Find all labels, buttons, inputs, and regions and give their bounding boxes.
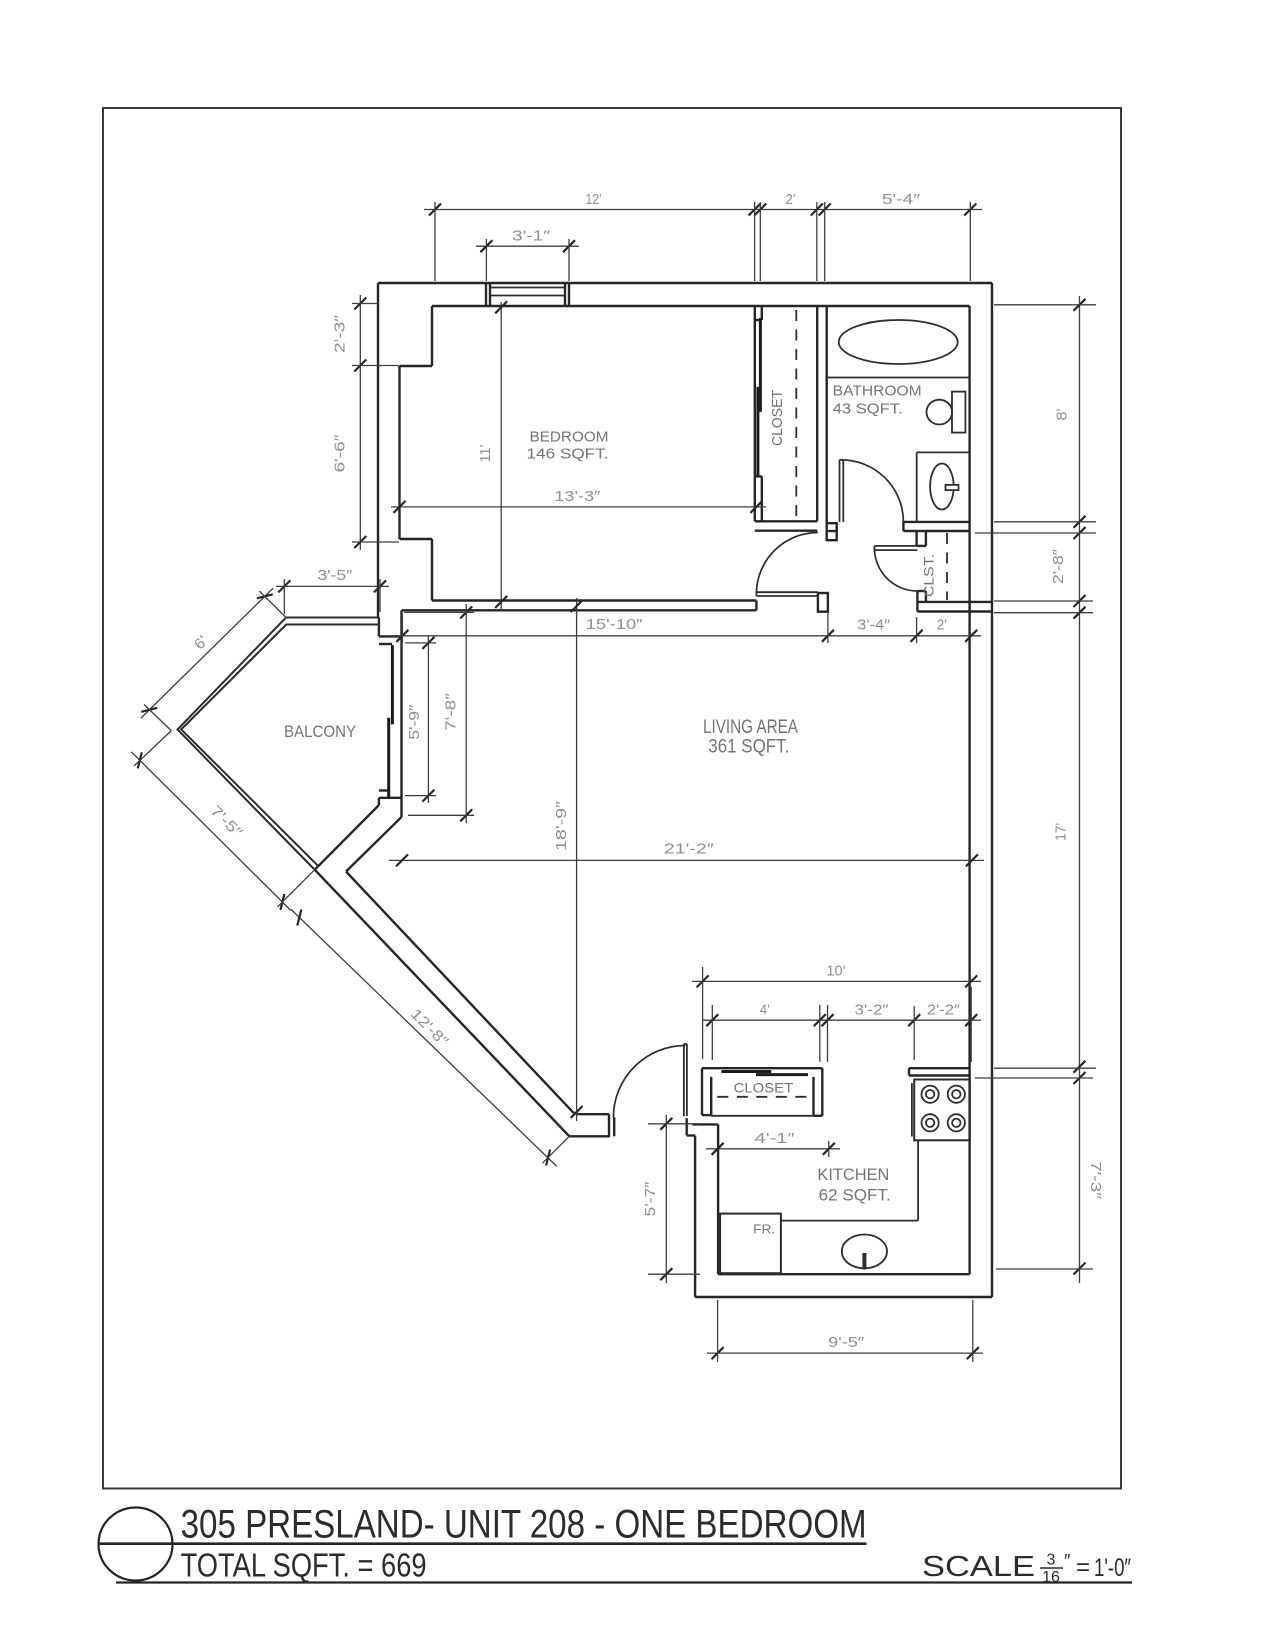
svg-text:6'-6″: 6'-6″ xyxy=(332,434,349,473)
svg-text:4'-1″: 4'-1″ xyxy=(755,1130,796,1147)
svg-text:16: 16 xyxy=(1042,1569,1060,1586)
svg-text:TOTAL SQFT. = 669: TOTAL SQFT. = 669 xyxy=(181,1547,427,1584)
svg-text:=: = xyxy=(1076,1554,1090,1581)
svg-text:7'-3″: 7'-3″ xyxy=(1087,1161,1104,1200)
svg-text:11': 11' xyxy=(477,444,494,462)
svg-text:2'-3″: 2'-3″ xyxy=(332,314,349,353)
svg-text:LIVING AREA: LIVING AREA xyxy=(703,717,798,738)
svg-text:2': 2' xyxy=(937,617,947,634)
svg-text:″: ″ xyxy=(1064,1551,1071,1571)
svg-text:305 PRESLAND- UNIT 208 - ONE B: 305 PRESLAND- UNIT 208 - ONE BEDROOM xyxy=(181,1503,867,1547)
svg-text:43 SQFT.: 43 SQFT. xyxy=(833,401,903,418)
svg-text:CLOSET: CLOSET xyxy=(734,1080,794,1096)
svg-text:FR.: FR. xyxy=(753,1222,775,1237)
svg-text:8': 8' xyxy=(1054,408,1071,420)
svg-text:21'-2″: 21'-2″ xyxy=(664,841,715,858)
svg-text:1'-0″: 1'-0″ xyxy=(1094,1554,1131,1582)
svg-text:4': 4' xyxy=(760,1002,770,1019)
svg-text:3'-4″: 3'-4″ xyxy=(857,617,891,634)
svg-text:9'-5″: 9'-5″ xyxy=(828,1334,865,1351)
svg-text:13'-3″: 13'-3″ xyxy=(554,488,601,505)
svg-text:7'-8″: 7'-8″ xyxy=(443,692,460,731)
svg-text:5'-9″: 5'-9″ xyxy=(406,704,423,740)
svg-text:5'-7″: 5'-7″ xyxy=(642,1181,659,1217)
svg-text:62 SQFT.: 62 SQFT. xyxy=(819,1186,891,1205)
svg-text:10': 10' xyxy=(826,962,845,979)
svg-text:SCALE: SCALE xyxy=(922,1551,1035,1583)
svg-text:BEDROOM: BEDROOM xyxy=(530,429,609,446)
svg-text:BATHROOM: BATHROOM xyxy=(833,383,922,400)
svg-text:KITCHEN: KITCHEN xyxy=(817,1165,889,1184)
svg-text:3'-1″: 3'-1″ xyxy=(512,228,551,245)
svg-text:2'-8″: 2'-8″ xyxy=(1050,548,1067,584)
svg-text:12': 12' xyxy=(586,191,602,208)
svg-text:2'-2″: 2'-2″ xyxy=(927,1002,961,1019)
svg-text:15'-10″: 15'-10″ xyxy=(586,616,644,633)
svg-text:5'-4″: 5'-4″ xyxy=(882,191,921,208)
svg-text:18'-9″: 18'-9″ xyxy=(553,800,570,851)
svg-text:2': 2' xyxy=(786,191,796,208)
svg-text:CLST.: CLST. xyxy=(922,554,937,597)
svg-text:CLOSET: CLOSET xyxy=(769,390,786,446)
svg-text:17': 17' xyxy=(1052,823,1069,841)
svg-text:BALCONY: BALCONY xyxy=(284,722,356,741)
svg-text:3'-2″: 3'-2″ xyxy=(855,1002,890,1019)
svg-text:3'-5″: 3'-5″ xyxy=(317,567,353,584)
svg-text:146 SQFT.: 146 SQFT. xyxy=(527,446,609,463)
svg-text:3: 3 xyxy=(1047,1552,1056,1569)
svg-text:361 SQFT.: 361 SQFT. xyxy=(708,737,789,758)
